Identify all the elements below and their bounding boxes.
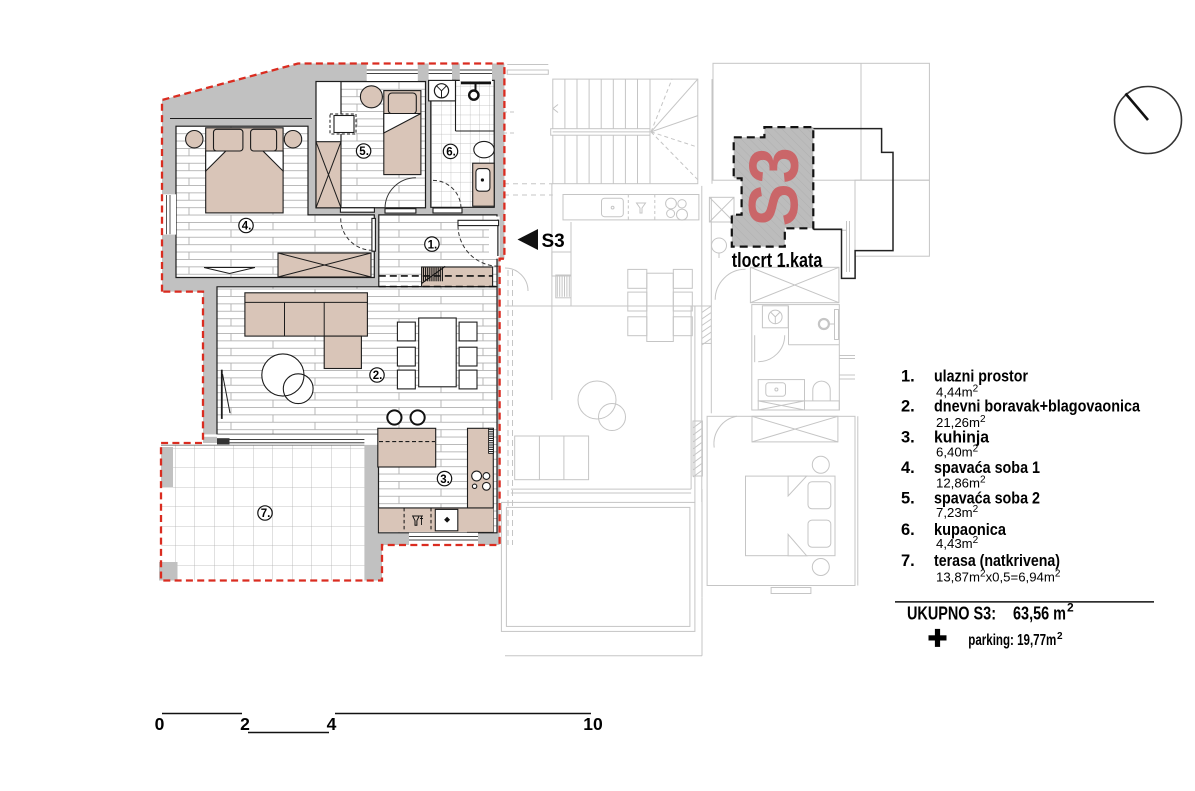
- svg-text:1.: 1.: [428, 239, 438, 251]
- svg-text:5.: 5.: [901, 490, 915, 508]
- svg-text:6.: 6.: [901, 521, 915, 539]
- svg-text:spavaća soba 1: spavaća soba 1: [934, 459, 1040, 477]
- svg-text:3.: 3.: [901, 429, 915, 447]
- svg-text:4,43m2: 4,43m2: [936, 535, 979, 551]
- svg-text:1.: 1.: [901, 367, 915, 385]
- svg-text:dnevni boravak+blagovaonica: dnevni boravak+blagovaonica: [934, 398, 1141, 416]
- svg-text:3.: 3.: [440, 474, 450, 486]
- svg-text:13,87m2x0,5=6,94m2: 13,87m2x0,5=6,94m2: [936, 569, 1061, 585]
- svg-text:6,40m2: 6,40m2: [936, 443, 979, 459]
- svg-text:12,86m2: 12,86m2: [936, 475, 986, 491]
- svg-text:0: 0: [155, 714, 165, 734]
- svg-text:6.: 6.: [446, 147, 456, 159]
- svg-text:2: 2: [1067, 601, 1074, 615]
- svg-text:7.: 7.: [901, 552, 915, 570]
- svg-text:tlocrt 1.kata: tlocrt 1.kata: [732, 249, 823, 272]
- svg-text:S3: S3: [735, 148, 813, 227]
- svg-text:5.: 5.: [359, 146, 369, 158]
- svg-text:2.: 2.: [373, 370, 383, 382]
- svg-text:UKUPNO S3:: UKUPNO S3:: [907, 604, 996, 624]
- svg-text:4.: 4.: [242, 221, 252, 233]
- svg-text:S3: S3: [542, 231, 565, 252]
- svg-text:7.: 7.: [261, 508, 271, 520]
- svg-text:2.: 2.: [901, 398, 915, 416]
- svg-text:4.: 4.: [901, 459, 915, 477]
- svg-text:ulazni prostor: ulazni prostor: [934, 367, 1028, 385]
- svg-text:2: 2: [240, 714, 250, 734]
- svg-text:10: 10: [583, 714, 603, 734]
- svg-text:terasa (natkrivena): terasa (natkrivena): [934, 552, 1060, 570]
- svg-text:parking: 19,77m: parking: 19,77m: [968, 632, 1056, 649]
- svg-text:2: 2: [1057, 631, 1063, 642]
- svg-text:63,56 m: 63,56 m: [1013, 604, 1066, 624]
- svg-text:7,23m2: 7,23m2: [936, 504, 979, 520]
- svg-text:4: 4: [327, 714, 337, 734]
